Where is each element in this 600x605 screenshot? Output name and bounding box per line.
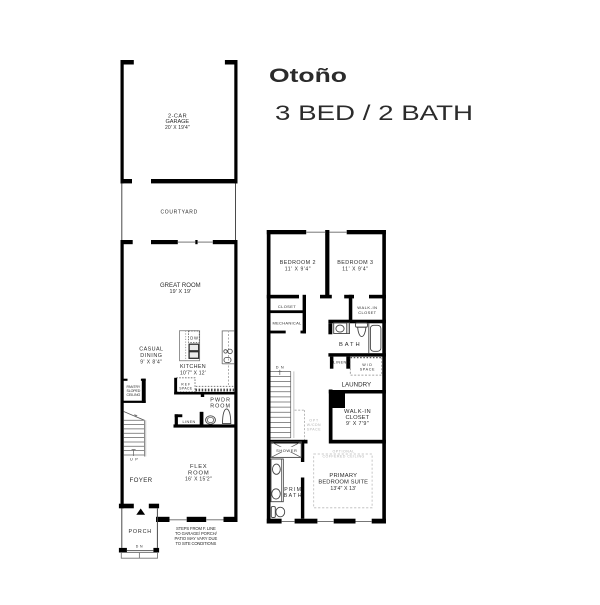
- svg-text:BEDROOM SUITE: BEDROOM SUITE: [318, 479, 368, 485]
- svg-text:FLEX: FLEX: [190, 464, 207, 470]
- svg-text:FOYER: FOYER: [130, 477, 153, 484]
- svg-text:COFFERED CEILING: COFFERED CEILING: [323, 454, 365, 458]
- svg-text:11' X 9'4": 11' X 9'4": [285, 267, 311, 273]
- svg-text:DINING: DINING: [140, 353, 162, 359]
- svg-text:PRIMARY: PRIMARY: [329, 473, 357, 479]
- svg-text:LINEN: LINEN: [183, 420, 196, 424]
- svg-text:20' X 19'4": 20' X 19'4": [165, 125, 190, 131]
- svg-text:LINEN: LINEN: [333, 360, 346, 364]
- svg-text:SPACE: SPACE: [179, 387, 193, 391]
- svg-text:MECHANICAL: MECHANICAL: [273, 320, 303, 325]
- svg-text:BATH: BATH: [339, 342, 360, 348]
- svg-text:19' X 19': 19' X 19': [170, 289, 192, 295]
- svg-text:BEDROOM 2: BEDROOM 2: [280, 260, 316, 266]
- svg-text:OPT: OPT: [309, 419, 319, 423]
- svg-text:3 BED / 2 BATH: 3 BED / 2 BATH: [275, 101, 473, 125]
- svg-text:CLOSET: CLOSET: [358, 310, 376, 315]
- svg-text:CEILING: CEILING: [127, 393, 141, 397]
- svg-text:W/CDN: W/CDN: [307, 423, 321, 427]
- svg-text:BEDROOM 3: BEDROOM 3: [337, 260, 373, 266]
- svg-text:TO SITE CONDITIONS: TO SITE CONDITIONS: [176, 541, 217, 546]
- svg-text:DW: DW: [190, 336, 198, 341]
- svg-text:LAUNDRY: LAUNDRY: [342, 382, 372, 389]
- svg-text:PORCH: PORCH: [129, 529, 152, 535]
- svg-text:16' X 15'2": 16' X 15'2": [185, 477, 212, 483]
- svg-text:GREAT ROOM: GREAT ROOM: [160, 283, 201, 289]
- svg-text:CASUAL: CASUAL: [139, 347, 163, 353]
- svg-text:9' X 7'9": 9' X 7'9": [346, 421, 369, 427]
- svg-text:11' X 9'4": 11' X 9'4": [342, 267, 368, 273]
- svg-text:10'7" X 12': 10'7" X 12': [180, 371, 206, 377]
- svg-text:SPACE: SPACE: [360, 367, 375, 371]
- svg-text:BATH: BATH: [284, 493, 302, 499]
- svg-text:PWDR: PWDR: [210, 397, 230, 403]
- svg-text:SPACE: SPACE: [307, 428, 321, 432]
- svg-text:ROOM: ROOM: [188, 470, 209, 476]
- svg-text:COURTYARD: COURTYARD: [161, 210, 198, 216]
- svg-text:OPTIONAL: OPTIONAL: [333, 450, 355, 454]
- svg-text:CLOSET: CLOSET: [278, 304, 296, 309]
- svg-text:KITCHEN: KITCHEN: [180, 364, 206, 370]
- svg-text:SHOWER: SHOWER: [276, 448, 297, 453]
- svg-text:9' X 8'4": 9' X 8'4": [140, 359, 162, 365]
- svg-text:Otoño: Otoño: [269, 65, 347, 87]
- svg-text:DN: DN: [136, 544, 143, 548]
- svg-text:13'4" X 13': 13'4" X 13': [330, 486, 356, 492]
